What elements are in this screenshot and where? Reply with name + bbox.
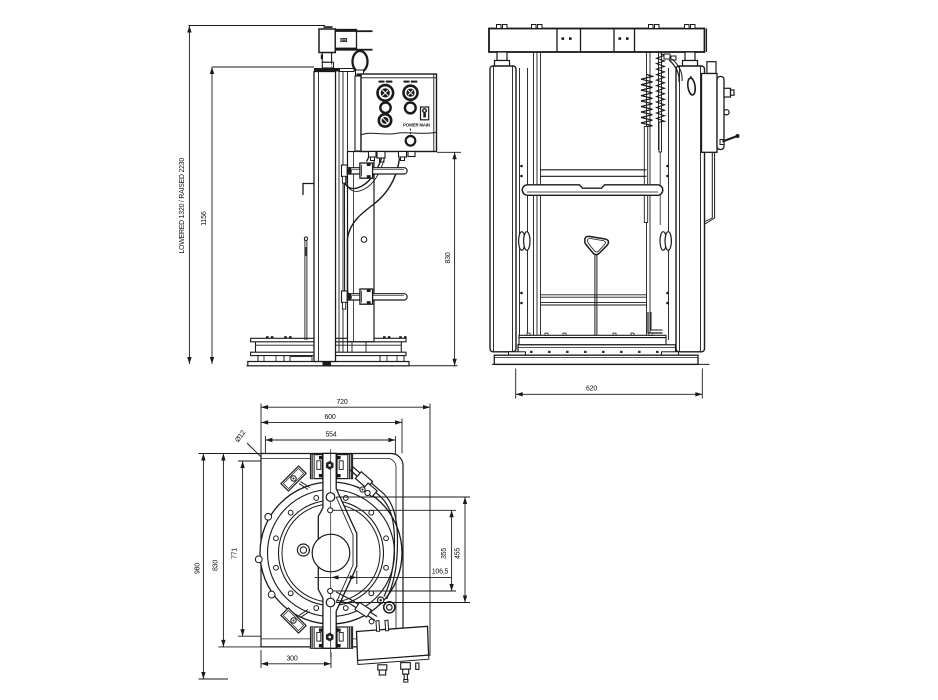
svg-text:355: 355: [441, 548, 448, 559]
svg-text:300: 300: [286, 655, 297, 662]
svg-text:POWER MAIN: POWER MAIN: [403, 123, 430, 128]
svg-text:106,5: 106,5: [432, 569, 449, 576]
svg-text:LOWERED 1320 / RAISED 2230: LOWERED 1320 / RAISED 2230: [179, 158, 186, 254]
svg-text:620: 620: [586, 386, 597, 393]
svg-text:554: 554: [325, 432, 336, 439]
svg-text:600: 600: [324, 414, 335, 421]
svg-text:980: 980: [194, 563, 201, 574]
svg-text:455: 455: [455, 548, 462, 559]
svg-text:830: 830: [212, 560, 219, 571]
svg-text:1156: 1156: [201, 211, 208, 226]
svg-text:830: 830: [445, 252, 452, 263]
svg-text:771: 771: [232, 548, 239, 559]
svg-text:720: 720: [336, 399, 347, 406]
